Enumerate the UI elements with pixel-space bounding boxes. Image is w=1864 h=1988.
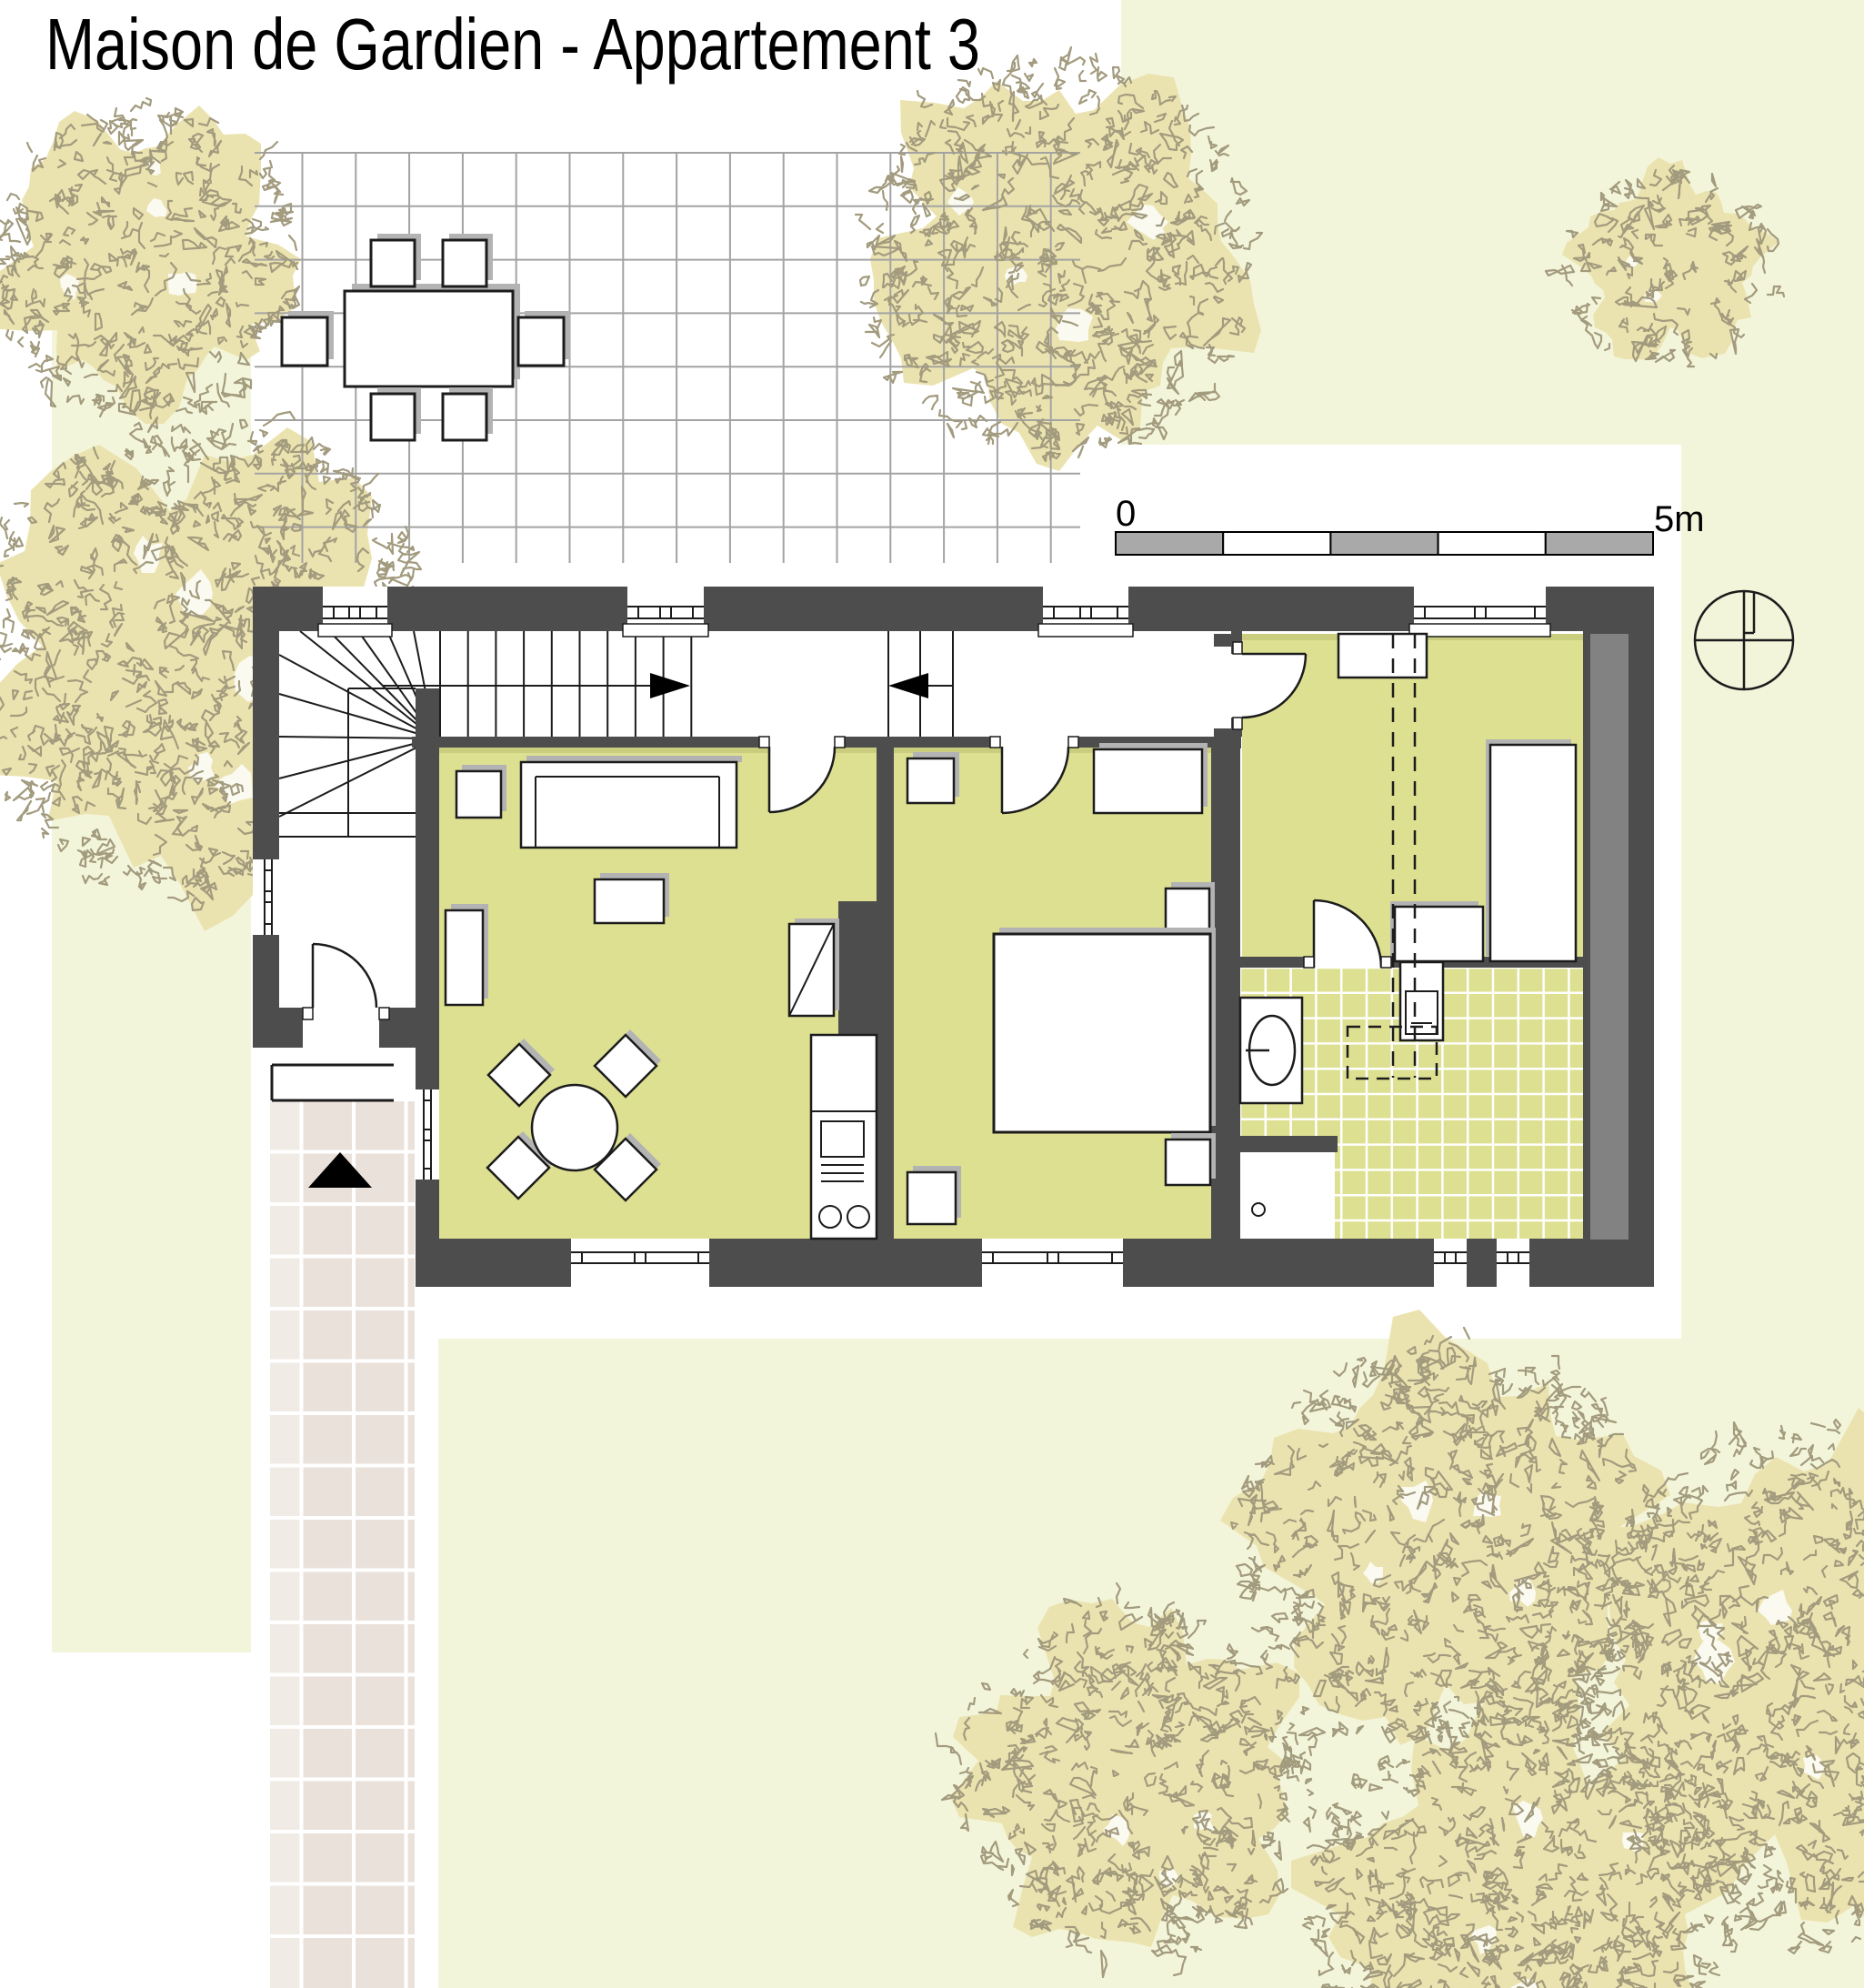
- svg-text:0: 0: [1116, 494, 1136, 534]
- svg-text:5m: 5m: [1654, 499, 1705, 539]
- svg-text:Maison de Gardien - Appartemen: Maison de Gardien - Appartement 3: [45, 4, 980, 85]
